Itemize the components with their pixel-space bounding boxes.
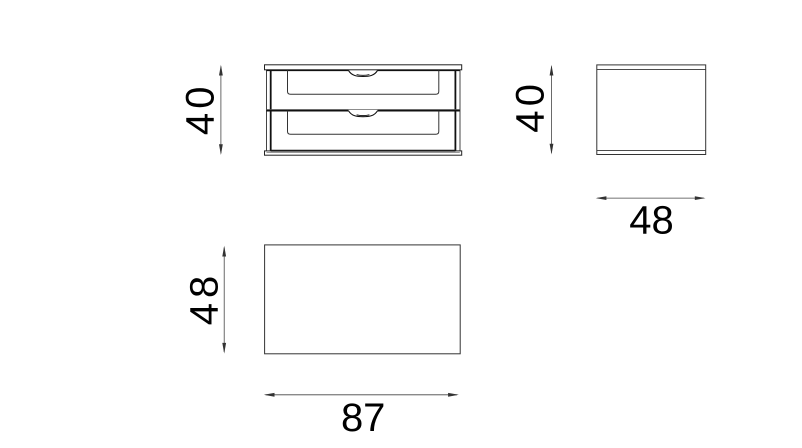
svg-text:48: 48 bbox=[182, 271, 226, 326]
svg-text:40: 40 bbox=[179, 82, 223, 135]
svg-text:87: 87 bbox=[341, 396, 386, 440]
svg-text:48: 48 bbox=[629, 199, 674, 243]
svg-text:40: 40 bbox=[509, 80, 553, 133]
